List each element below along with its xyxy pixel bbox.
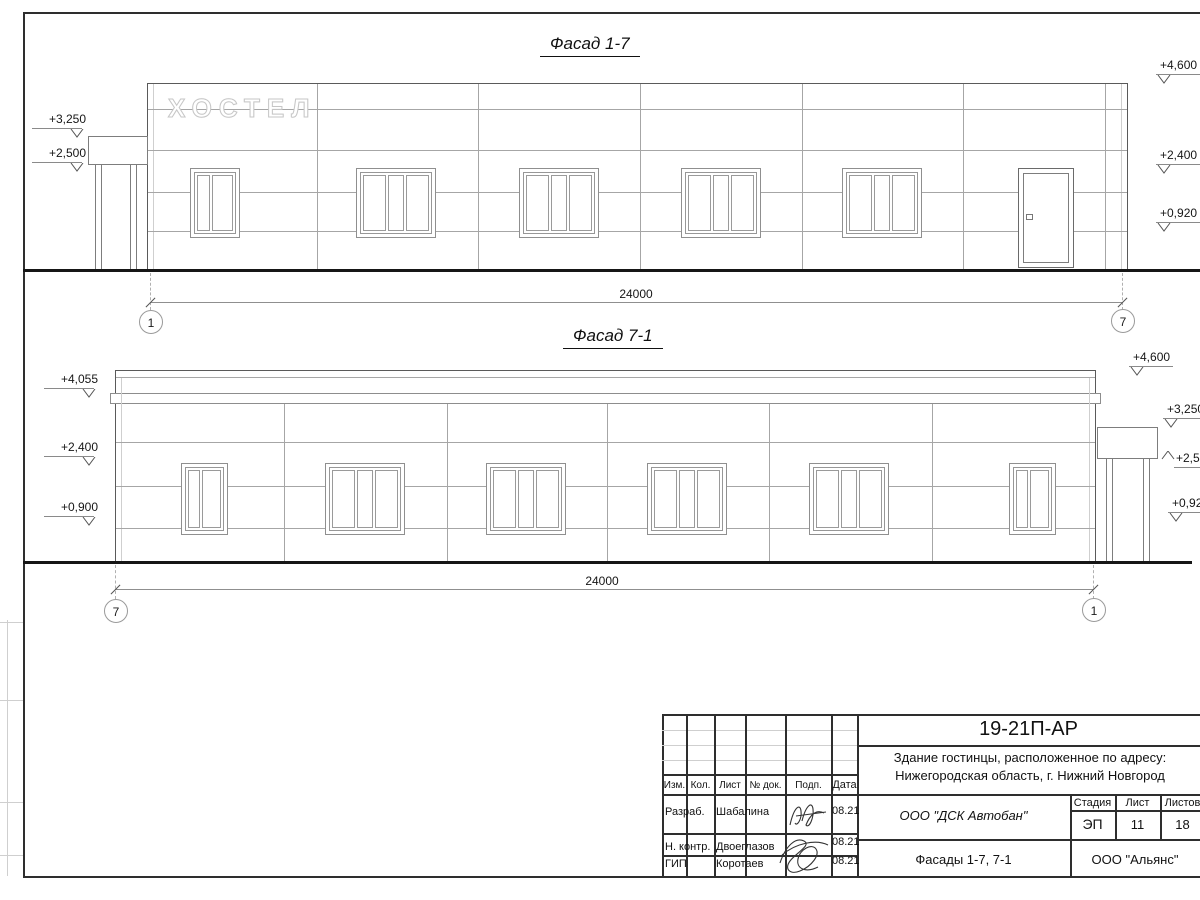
panel-joint-line [769, 404, 770, 562]
panel-joint-line [116, 528, 1095, 529]
sheet-title: Фасады 1-7, 7-1 [857, 852, 1070, 867]
panel-joint-line [116, 442, 1095, 443]
titleblock-role: ГИП [665, 858, 687, 870]
panel-joint-line [148, 150, 1127, 151]
axis-bubble: 1 [139, 310, 163, 334]
facade1-corner-line [1121, 84, 1122, 270]
drawing-sheet: Фасад 1-7 ХОСТЕЛ +3,250 +2,500 [0, 0, 1200, 900]
doc-number: 19-21П-АР [857, 718, 1200, 741]
titleblock-col-doc: № док. [746, 780, 785, 791]
margin-stamp-line [0, 700, 23, 701]
titleblock-line [662, 714, 1200, 716]
margin-stamp-line [0, 855, 23, 856]
elevation-arrow-icon [1130, 367, 1144, 376]
titleblock-col-izm: Изм. [663, 780, 686, 791]
elevation-mark: +2,500 [28, 146, 86, 160]
sheets-total: 18 [1160, 817, 1200, 832]
panel-joint-line [640, 84, 641, 270]
titleblock-role: Разраб. [665, 806, 705, 818]
titleblock-col-list: Лист [715, 780, 745, 791]
porch-column [95, 165, 102, 270]
stage-value: ЭП [1070, 816, 1115, 832]
elevation-mark: +3,250 [28, 112, 86, 126]
dimension-line [115, 589, 1093, 590]
canopy [1097, 427, 1158, 459]
sheets-label: Листов [1160, 797, 1200, 809]
panel-joint-line [478, 84, 479, 270]
panel-joint-line [607, 404, 608, 562]
panel-joint-line [148, 231, 1127, 232]
signature [776, 833, 832, 876]
frame-bottom-line [23, 876, 1200, 878]
titleblock-name: Двоеглазов [716, 841, 774, 853]
titleblock-line [662, 745, 858, 746]
dimension-value: 24000 [562, 574, 642, 588]
project-address-line2: Нижегородская область, г. Нижний Новгоро… [860, 768, 1200, 783]
hostel-sign: ХОСТЕЛ [168, 93, 317, 124]
elevation-arrow-icon [82, 457, 96, 466]
panel-joint-line [447, 404, 448, 562]
titleblock-role: Н. контр. [665, 841, 710, 853]
facade2-corner-line [1089, 378, 1090, 562]
titleblock-name: Коротаев [716, 858, 764, 870]
elevation-mark: +0,900 [40, 500, 98, 514]
titleblock-line [857, 839, 1200, 841]
window [681, 168, 761, 238]
window [809, 463, 889, 535]
canopy [88, 136, 148, 165]
facade2-title: Фасад 7-1 [563, 326, 663, 349]
elevation-mark: +0,920 [1160, 206, 1197, 220]
titleblock-name: Шабалина [716, 806, 769, 818]
axis-extension-line [1093, 565, 1094, 599]
window [1009, 463, 1056, 535]
elevation-mark: +4,055 [40, 372, 98, 386]
panel-joint-line [1105, 84, 1106, 270]
titleblock-line [662, 774, 858, 776]
panel-joint-line [963, 84, 964, 270]
frame-left-line [23, 12, 25, 878]
titleblock-line [662, 760, 858, 761]
door-handle [1026, 214, 1033, 220]
ground-line [23, 561, 1192, 564]
elevation-arrow-icon [1157, 165, 1171, 174]
dimension-line [150, 302, 1123, 303]
porch-column [130, 165, 137, 270]
titleblock-date: 08.21 [832, 855, 860, 867]
elevation-arrow-icon [70, 163, 84, 172]
margin-stamp-line [7, 620, 8, 876]
window [325, 463, 405, 535]
frame-top-line [23, 12, 1200, 14]
axis-bubble: 1 [1082, 598, 1106, 622]
axis-extension-line [115, 565, 116, 599]
elevation-mark: +2,500 [1176, 451, 1200, 465]
window [181, 463, 228, 535]
panel-joint-line [802, 84, 803, 270]
panel-joint-line [317, 84, 318, 270]
titleblock-date: 08.21 [832, 836, 860, 848]
elevation-arrow-icon [70, 129, 84, 138]
panel-joint-line [932, 404, 933, 562]
elevation-mark: +4,600 [1133, 350, 1170, 364]
panel-joint-line [284, 404, 285, 562]
titleblock-col-data: Дата [832, 779, 857, 791]
sheet-label: Лист [1115, 797, 1160, 809]
axis-extension-line [1122, 273, 1123, 310]
window [842, 168, 922, 238]
facade2-corner-line [121, 378, 122, 562]
axis-extension-line [150, 273, 151, 310]
facade1-title: Фасад 1-7 [540, 34, 640, 57]
elevation-arrow-icon [1157, 75, 1171, 84]
titleblock-line [662, 730, 858, 731]
elevation-arrow-up-icon [1161, 451, 1175, 460]
window [519, 168, 599, 238]
project-address-line1: Здание гостинцы, расположенное по адресу… [860, 750, 1200, 765]
window [647, 463, 727, 535]
titleblock-line [662, 794, 1200, 796]
signature [786, 799, 830, 832]
elevation-arrow-icon [1157, 223, 1171, 232]
porch-column [1106, 459, 1113, 562]
titleblock-date: 08.21 [832, 805, 860, 817]
window [190, 168, 240, 238]
axis-bubble: 7 [1111, 309, 1135, 333]
titleblock-col-podp: Подп. [786, 780, 831, 791]
dimension-value: 24000 [596, 287, 676, 301]
elevation-mark: +3,250 [1167, 402, 1200, 416]
margin-stamp-line [0, 622, 23, 623]
entrance-door [1018, 168, 1074, 268]
titleblock-line [1070, 810, 1200, 812]
elevation-mark: +0,920 [1172, 496, 1200, 510]
axis-bubble: 7 [104, 599, 128, 623]
elevation-shelf [1174, 467, 1200, 468]
window [356, 168, 436, 238]
elevation-mark: +2,400 [1160, 148, 1197, 162]
sheet-number: 11 [1115, 817, 1160, 832]
titleblock-col-kol: Кол. [687, 780, 714, 791]
elevation-arrow-icon [82, 389, 96, 398]
elevation-arrow-icon [1169, 513, 1183, 522]
porch-column [1143, 459, 1150, 562]
elevation-arrow-icon [1164, 419, 1178, 428]
window [486, 463, 566, 535]
fascia-band [110, 393, 1101, 404]
elevation-mark: +2,400 [40, 440, 98, 454]
ground-line [23, 269, 1200, 272]
panel-joint-line [116, 486, 1095, 487]
elevation-arrow-icon [82, 517, 96, 526]
margin-stamp-line [0, 802, 23, 803]
design-company: ООО "ДСК Автобан" [857, 808, 1070, 823]
stage-label: Стадия [1070, 797, 1115, 809]
elevation-mark: +4,600 [1160, 58, 1197, 72]
panel-joint-line [148, 192, 1127, 193]
customer-company: ООО "Альянс" [1070, 852, 1200, 867]
parapet-line [116, 377, 1095, 378]
facade1-corner-line [153, 84, 154, 270]
titleblock-line [857, 745, 1200, 747]
